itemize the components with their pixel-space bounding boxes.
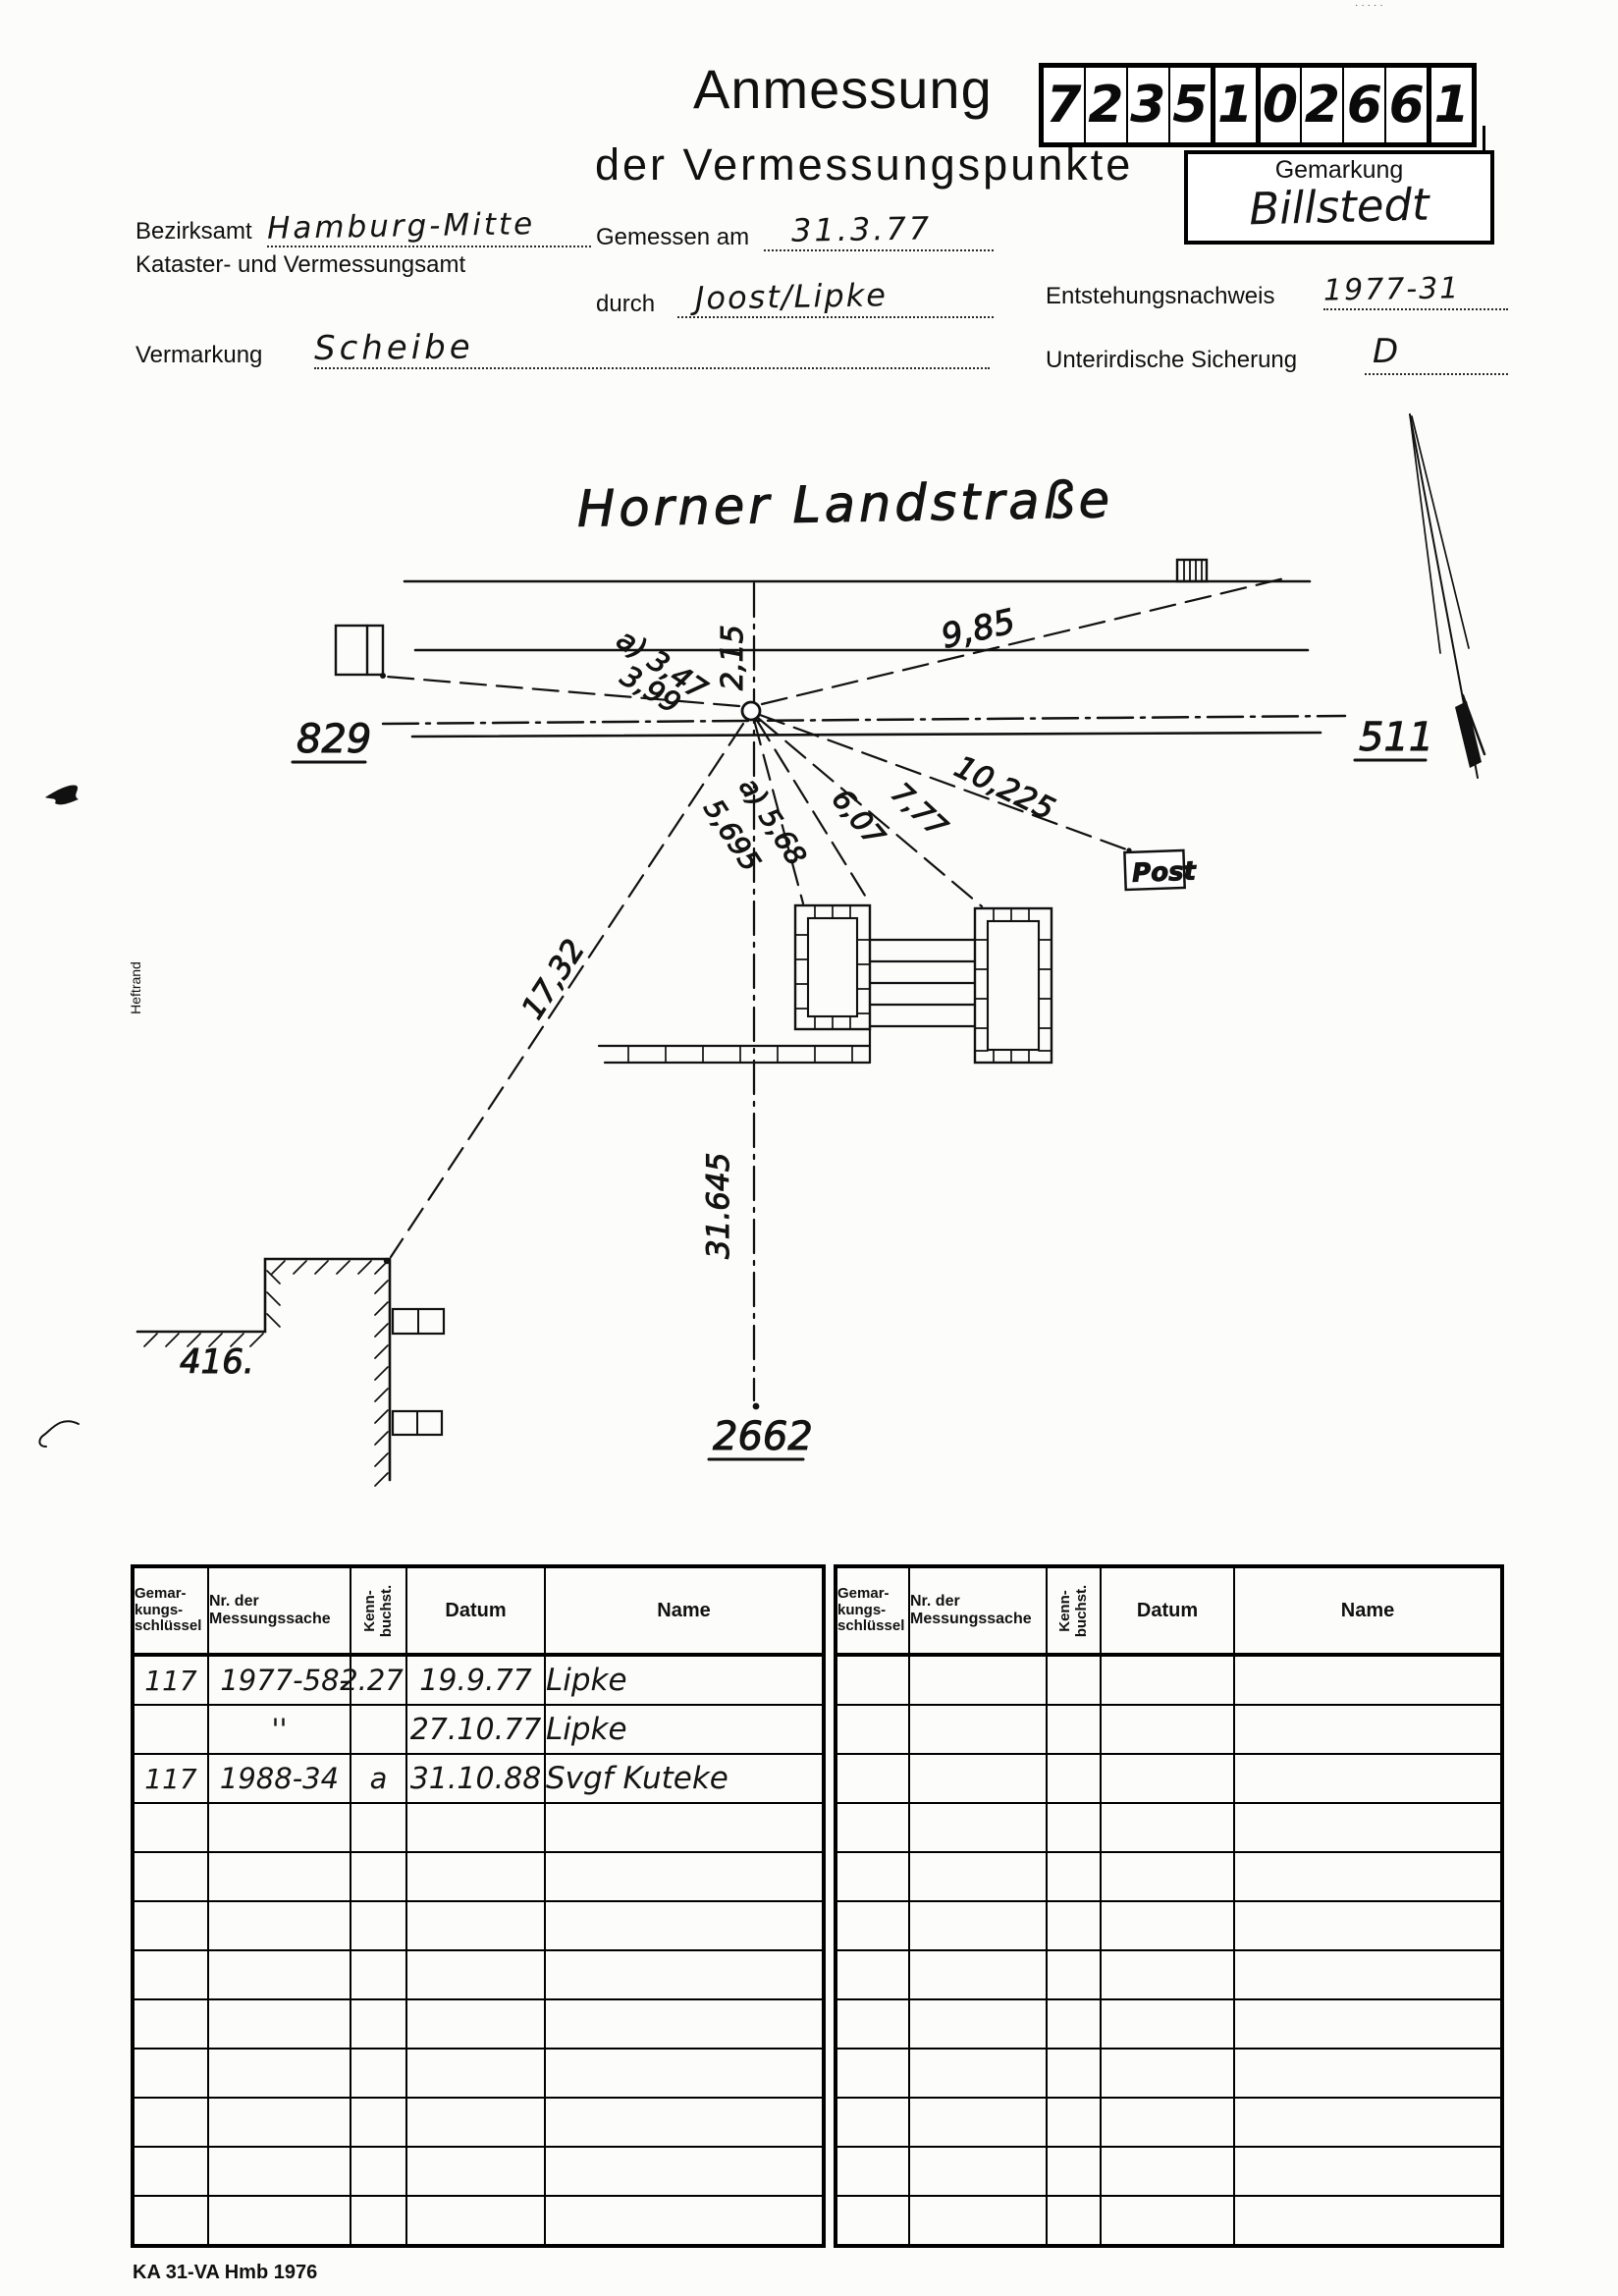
table-cell [1101,1754,1234,1803]
table-cell [909,1901,1047,1950]
table-cell [545,2098,824,2147]
table-row: 1171977-58-2.2719.9.77Lipke [133,1655,824,1705]
table-cell [1101,1901,1234,1950]
table-cell [208,1852,351,1901]
survey-point [742,702,760,720]
point-label-2662: 2662 [713,1414,813,1459]
table-cell [133,1705,208,1754]
table-cell [1047,1705,1101,1754]
table-cell [545,1803,824,1852]
table-cell [406,2049,545,2098]
table-cell [836,1950,909,1999]
table-cell [1047,2147,1101,2196]
table-row [133,2147,824,2196]
table-cell [208,1950,351,1999]
table-row [133,1852,824,1901]
page-title: Anmessung [693,57,993,121]
log-table-left: Gemar- kungs- schlüssel Nr. der Messungs… [131,1564,826,2248]
table-cell [1101,1655,1234,1705]
table-cell [1047,1999,1101,2049]
building-2 [975,908,1052,1063]
table-row [836,1655,1502,1705]
table-row [836,1999,1502,2049]
header-line: Messungssache [209,1611,350,1628]
header-line: kungs- [837,1603,908,1619]
gemessen-field: 31.3.77 [764,208,994,251]
table-cell: 31.10.88 [406,1754,545,1803]
entstehung-label: Entstehungsnachweis [1046,283,1274,310]
table-cell: 27.10.77 [406,1705,545,1754]
table-row [133,1901,824,1950]
post-box: Post [1124,849,1198,890]
gate-symbol [1177,560,1207,581]
durch-label: durch [596,291,655,318]
table-cell [1101,2049,1234,2098]
doc-number-digit: 2 [1084,68,1126,142]
table-cell [208,2098,351,2147]
street-name: Horner Landstraße [576,471,1113,539]
table-cell [909,1754,1047,1803]
table-cell [1101,2196,1234,2246]
table-cell [909,2196,1047,2246]
measure-endpoint-dot [380,673,386,679]
table-cell [133,1803,208,1852]
vermarkung-label: Vermarkung [135,342,262,369]
sicherung-field: D [1365,330,1508,375]
amt-line2: Kataster- und Vermessungsamt [135,251,465,279]
table-cell [836,2098,909,2147]
table-row [133,1950,824,1999]
durch-value: Joost/Lipke [677,274,1012,317]
header-line: kungs- [135,1603,207,1619]
col-kennbuchstabe: Kenn- buchst. [351,1566,406,1655]
header-line: schlüssel [135,1618,207,1635]
gemarkung-value: Billstedt [1187,177,1490,237]
table-row [836,1852,1502,1901]
table-cell [836,1852,909,1901]
point-label-511: 511 [1359,715,1433,760]
table-cell [351,1901,406,1950]
table-row [836,1754,1502,1803]
col-name: Name [545,1566,824,1655]
table-cell [351,1852,406,1901]
doc-number-digit: 6 [1384,68,1427,142]
table-row [836,2147,1502,2196]
table-cell [1234,1852,1502,1901]
header-line: buchst. [379,1584,396,1636]
axis-end-dot [753,1403,760,1410]
ink-squiggle [39,1421,79,1447]
measure-6-07: 6,07 [826,783,892,853]
table-cell [406,2147,545,2196]
building-connectors [870,940,975,1063]
table-cell [545,1852,824,1901]
sicherung-label: Unterirdische Sicherung [1046,347,1297,374]
table-cell [1234,1803,1502,1852]
table-cell [1234,1901,1502,1950]
table-cell [133,1950,208,1999]
table-cell [351,1803,406,1852]
scanned-survey-form: ····· Anmessung der Vermessungspunkte 72… [0,0,1618,2296]
table-cell [208,1901,351,1950]
table-cell [1234,1999,1502,2049]
measure-9-85: 9,85 [938,602,1019,657]
table-row [133,2196,824,2246]
header-line: Nr. der [910,1593,1046,1611]
col-gemarkungsschluessel: Gemar- kungs- schlüssel [836,1566,909,1655]
table-cell [406,1803,545,1852]
table-cell [133,1999,208,2049]
doc-number-digit: 0 [1256,68,1301,142]
measure-2-15: 2,15 [716,625,750,690]
table-cell [909,2098,1047,2147]
bezirksamt-value: Hamburg-Mitte [267,205,592,246]
table-cell: 19.9.77 [406,1655,545,1705]
table-cell [351,1999,406,2049]
doc-number-digit: 2 [1300,68,1342,142]
gemessen-label: Gemessen am [596,224,749,251]
table-cell [545,2147,824,2196]
table-cell [836,1655,909,1705]
table-cell [836,1754,909,1803]
vermarkung-value: Scheibe [314,323,990,368]
table-cell [1234,1655,1502,1705]
table-cell: 1988-34 [208,1754,351,1803]
point-label-416: 416. [180,1342,254,1382]
table-cell [351,1950,406,1999]
doc-number-box: 7235102661 [1039,63,1477,147]
point-label-829: 829 [297,717,371,762]
form-code: KA 31-VA Hmb 1976 [133,2262,317,2284]
table-cell [836,2049,909,2098]
col-messungssache: Nr. der Messungssache [208,1566,351,1655]
post-dot [1126,847,1131,852]
doc-number-digit: 1 [1427,68,1472,142]
table-cell [1047,2098,1101,2147]
doc-number-digit: 6 [1342,68,1384,142]
table-cell [208,1803,351,1852]
post-label: Post [1132,856,1198,888]
table-cell [1234,2196,1502,2246]
entstehung-field: 1977-31 [1323,267,1508,310]
street-centerline [383,716,1345,724]
table-cell [133,1852,208,1901]
ink-blot [45,785,79,804]
header-line: schlüssel [837,1618,908,1635]
table-cell [909,2049,1047,2098]
table-cell [1047,1655,1101,1705]
table-cell [406,1999,545,2049]
table-cell: a [351,1754,406,1803]
table-cell: Svgf Kuteke [545,1754,824,1803]
table-cell [133,2196,208,2246]
table-cell [351,2049,406,2098]
header-line: Kenn- [1057,1590,1074,1632]
header-line: Kenn- [362,1590,379,1632]
survey-sketch: Post [0,412,1618,1552]
table-cell [1101,1999,1234,2049]
table-cell [909,2147,1047,2196]
table-cell [836,2196,909,2246]
measure-17-32: 17,32 [515,933,593,1025]
header-line: Gemar- [837,1586,908,1603]
table-row [133,2098,824,2147]
table-cell [909,1655,1047,1705]
table-cell [836,1999,909,2049]
table-cell: '' [208,1705,351,1754]
header-line: Messungssache [910,1611,1046,1628]
table-row [836,1950,1502,1999]
table-cell [836,1705,909,1754]
col-datum: Datum [1101,1566,1234,1655]
table-cell [406,1852,545,1901]
table-row [133,1803,824,1852]
table-cell [1047,1754,1101,1803]
doc-number-digit: 5 [1168,68,1211,142]
doc-number-digit: 3 [1126,68,1168,142]
table-cell [1101,1803,1234,1852]
scan-speck: ····· [1355,0,1386,11]
table-cell [545,2049,824,2098]
table-cell [1047,2049,1101,2098]
col-messungssache: Nr. der Messungssache [909,1566,1047,1655]
table-cell [351,2098,406,2147]
table-row [836,2098,1502,2147]
vermarkung-field: Scheibe [314,324,990,369]
table-cell [909,1999,1047,2049]
gemessen-value: 31.3.77 [764,208,1022,250]
table-cell [1234,2147,1502,2196]
table-cell [1047,1901,1101,1950]
table-row [133,2049,824,2098]
table-cell [1234,1754,1502,1803]
table-cell [208,2049,351,2098]
col-gemarkungsschluessel: Gemar- kungs- schlüssel [133,1566,208,1655]
table-cell [1234,1950,1502,1999]
table-cell [133,2049,208,2098]
street-building-symbol [336,626,383,675]
table-cell [545,1950,824,1999]
measure-7-77: 7,77 [885,776,954,844]
measure-31-645: 31.645 [701,1153,736,1259]
col-datum: Datum [406,1566,545,1655]
table-row [836,1803,1502,1852]
table-cell [1101,2147,1234,2196]
table-cell: 117 [133,1655,208,1705]
header-line: Gemar- [135,1586,207,1603]
table-row [836,1901,1502,1950]
entstehung-value: 1977-31 [1323,270,1509,307]
table-cell [351,2147,406,2196]
table-cell [1234,2049,1502,2098]
bezirksamt-label: Bezirksamt [135,218,252,246]
table-cell [133,1901,208,1950]
table-cell [406,2098,545,2147]
table-cell [909,1950,1047,1999]
table-cell [1101,1950,1234,1999]
table-cell [133,2098,208,2147]
table-header-row: Gemar- kungs- schlüssel Nr. der Messungs… [836,1566,1502,1655]
table-cell: Lipke [545,1705,824,1754]
log-table-right: Gemar- kungs- schlüssel Nr. der Messungs… [834,1564,1504,2248]
table-cell [545,2196,824,2246]
table-cell [909,1803,1047,1852]
col-kennbuchstabe: Kenn- buchst. [1047,1566,1101,1655]
table-cell [545,1999,824,2049]
table-cell [208,2196,351,2246]
table-cell [406,1901,545,1950]
gemarkung-box: Gemarkung Billstedt [1184,150,1494,245]
table-cell: 2.27 [351,1655,406,1705]
table-row: ''27.10.77Lipke [133,1705,824,1754]
measure-10-225: 10,225 [948,749,1059,828]
table-row [836,2196,1502,2246]
table-cell [836,1901,909,1950]
durch-field: Joost/Lipke [677,273,994,318]
table-cell [1101,2098,1234,2147]
table-cell [1101,1705,1234,1754]
box-connector-line [1483,126,1485,153]
table-header-row: Gemar- kungs- schlüssel Nr. der Messungs… [133,1566,824,1655]
table-cell [1234,2098,1502,2147]
table-cell [208,1999,351,2049]
table-cell [406,1950,545,1999]
building-1 [795,905,870,1029]
table-cell: 1977-58- [208,1655,351,1705]
doc-number-digit: 7 [1044,68,1084,142]
table-cell [545,1901,824,1950]
table-cell [1234,1705,1502,1754]
header-line: buchst. [1074,1584,1091,1636]
table-cell [836,2147,909,2196]
table-cell [351,1705,406,1754]
table-cell [406,2196,545,2246]
table-row [836,1705,1502,1754]
table-cell [909,1705,1047,1754]
table-cell [1047,1803,1101,1852]
table-cell [1101,1852,1234,1901]
table-cell: Lipke [545,1655,824,1705]
table-cell [133,2147,208,2196]
doc-number-digit: 1 [1211,68,1256,142]
sicherung-value: D [1365,332,1516,371]
table-cell [909,1852,1047,1901]
table-cell [208,2147,351,2196]
table-cell [351,2196,406,2246]
table-cell [1047,2196,1101,2246]
table-cell [836,1803,909,1852]
table-row [836,2049,1502,2098]
table-cell [1047,1950,1101,1999]
wall-strip [599,1046,870,1063]
table-cell [1047,1852,1101,1901]
col-name: Name [1234,1566,1502,1655]
street-lines [404,581,1321,737]
table-row: 1171988-34a31.10.88Svgf Kuteke [133,1754,824,1803]
header-line: Nr. der [209,1593,350,1611]
bezirksamt-field: Hamburg-Mitte [267,206,591,247]
table-cell: 117 [133,1754,208,1803]
table-row [133,1999,824,2049]
